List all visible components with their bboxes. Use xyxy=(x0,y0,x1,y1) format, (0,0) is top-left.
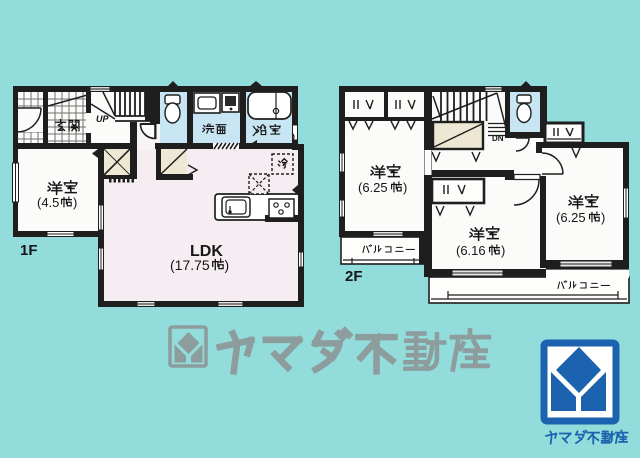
svg-text:): ) xyxy=(501,243,505,258)
svg-text:): ) xyxy=(225,257,230,273)
svg-text:): ) xyxy=(601,210,605,225)
svg-text:DN: DN xyxy=(492,134,504,143)
svg-text:2F: 2F xyxy=(345,268,363,285)
svg-text:): ) xyxy=(73,195,77,210)
svg-text:(17.75: (17.75 xyxy=(170,257,210,273)
svg-text:(4.5: (4.5 xyxy=(37,195,59,210)
svg-text:(6.16: (6.16 xyxy=(456,243,486,258)
svg-text:(6.25: (6.25 xyxy=(556,210,586,225)
svg-text:1F: 1F xyxy=(20,242,38,259)
svg-text:): ) xyxy=(403,180,407,195)
svg-text:UP: UP xyxy=(96,114,109,124)
svg-text:(6.25: (6.25 xyxy=(358,180,388,195)
